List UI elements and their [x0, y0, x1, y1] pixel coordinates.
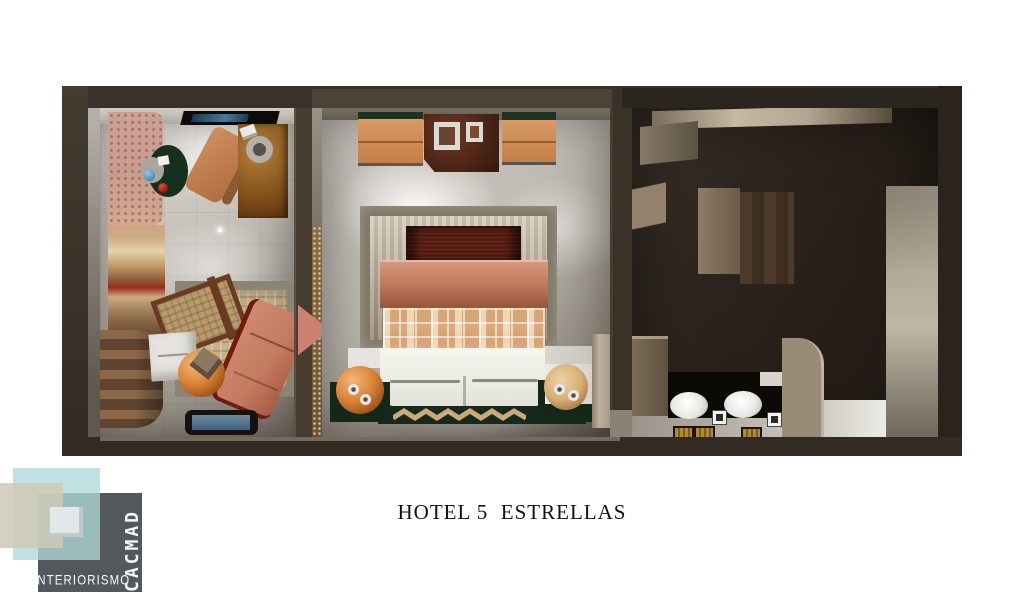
tv-console [180, 111, 279, 125]
corridor-wall-panel [632, 182, 666, 229]
table-item-blue [144, 170, 155, 181]
wardrobe-doors [740, 192, 794, 284]
white-bench-left [348, 348, 380, 368]
wall-left-face [88, 108, 100, 437]
logo-square-center [50, 507, 83, 537]
wall-top [62, 86, 962, 108]
wall-segment-light [312, 89, 612, 108]
sink-right [724, 391, 762, 418]
lamp-disc [348, 384, 359, 395]
striped-blanket [108, 225, 165, 345]
duvet-crease [390, 380, 460, 383]
design-render-page: HOTEL 5 ESTRELLAS INTERIORISMO CACMAD [0, 0, 1024, 600]
lamp-disc [568, 390, 579, 401]
tv-screen [191, 114, 249, 122]
bed-copper-blanket [380, 260, 548, 308]
bedroom [322, 108, 610, 437]
wall-bottom-highlight [100, 437, 620, 441]
bench-seam [502, 141, 556, 143]
wall-right [938, 86, 962, 456]
soap-dish [767, 412, 782, 427]
wall-left [62, 86, 88, 456]
counter-notch [760, 372, 782, 386]
luggage-bench-left [358, 119, 423, 163]
bed-duvet [380, 348, 549, 408]
bath-mat [694, 426, 715, 437]
sitting-room [100, 108, 294, 437]
shower-floor [824, 400, 886, 437]
lamp-disc [554, 384, 565, 395]
bath-mat [673, 426, 694, 437]
logo-tagline: INTERIORISMO [33, 572, 130, 588]
bath-mat [741, 427, 762, 437]
sink-left [670, 392, 708, 419]
duvet-crease [472, 379, 538, 382]
desk-lamp-base [246, 136, 273, 163]
luggage-bench-right [502, 120, 556, 162]
studio-logo: INTERIORISMO CACMAD [0, 460, 170, 600]
picture-frame-large [434, 122, 460, 150]
floor-tray [185, 410, 258, 435]
floorplan-render [62, 86, 962, 456]
doorway-gap [610, 410, 632, 437]
bed-plaid-throw [383, 308, 545, 352]
picture-frame-small [466, 122, 483, 142]
sphere-lamp-left [336, 366, 384, 414]
duvet-split [463, 376, 466, 408]
bench-seam [358, 141, 423, 143]
dresser [424, 114, 499, 172]
wall-segment-dark [622, 88, 962, 108]
logo-brand: CACMAD [122, 496, 143, 592]
writing-desk [238, 124, 288, 218]
curved-partition [782, 338, 824, 437]
hallway-wall [640, 121, 698, 165]
sphere-lamp-right [544, 364, 588, 410]
caption-title: HOTEL 5 ESTRELLAS [62, 500, 962, 525]
wall-divider-2 [610, 108, 632, 437]
tray-screen [192, 415, 250, 430]
wall-divider-1 [294, 108, 312, 437]
headboard-cushion [406, 226, 521, 262]
open-door-panel [592, 334, 610, 428]
shower-wall-panel [886, 186, 938, 437]
floor-light-spot [218, 228, 222, 232]
soap-dish [712, 410, 727, 425]
table-item-red [158, 183, 168, 193]
bathroom-corridor [632, 108, 938, 437]
round-side-table [148, 145, 188, 197]
lamp-disc [360, 394, 371, 405]
zigzag-runner [393, 408, 526, 421]
table-item-white [157, 155, 169, 166]
lounge-chair-bar [207, 276, 237, 341]
closet-panel [698, 188, 740, 274]
